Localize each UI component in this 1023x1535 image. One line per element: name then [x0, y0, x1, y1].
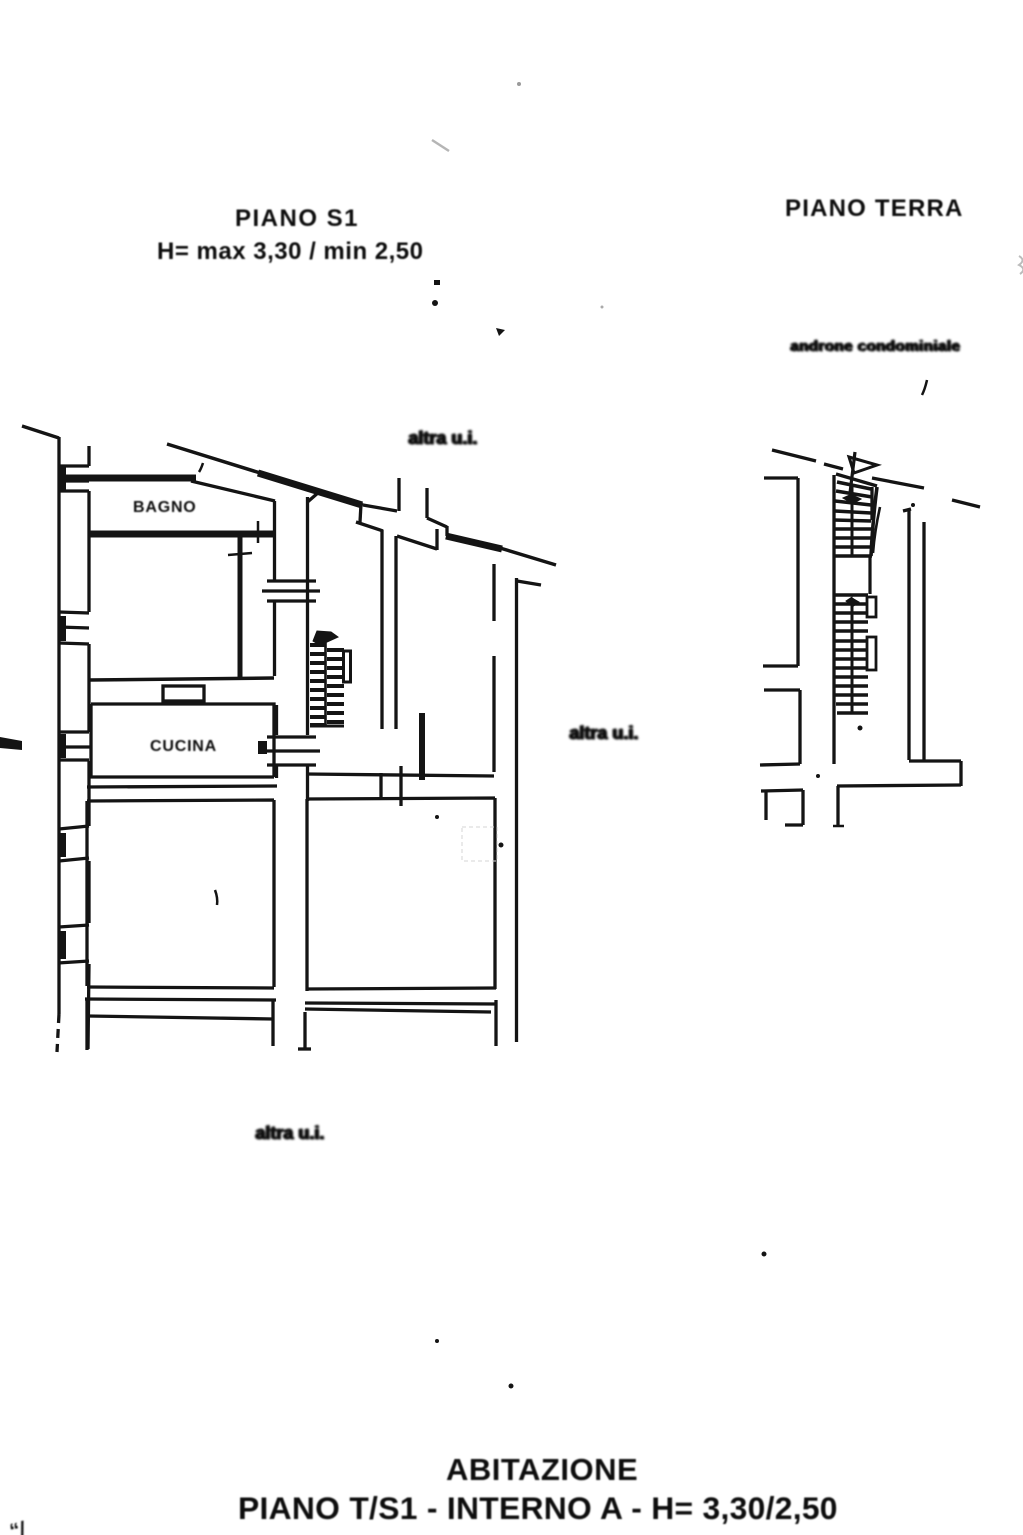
svg-text:CUCINA: CUCINA	[150, 738, 217, 755]
svg-text:H= max 3,30 / min 2,50: H= max 3,30 / min 2,50	[157, 238, 423, 265]
svg-text:ABITAZIONE: ABITAZIONE	[446, 1452, 638, 1487]
svg-text:altra u.i.: altra u.i.	[409, 428, 478, 448]
svg-text:PIANO TERRA: PIANO TERRA	[785, 195, 964, 222]
svg-text:PIANO S1: PIANO S1	[235, 205, 359, 232]
svg-text:altra u.i.: altra u.i.	[570, 723, 639, 743]
svg-text:BAGNO: BAGNO	[133, 499, 197, 516]
svg-text:PIANO T/S1 - INTERNO A - H= 3,: PIANO T/S1 - INTERNO A - H= 3,30/2,50	[238, 1490, 838, 1526]
svg-text:altra u.i.: altra u.i.	[256, 1123, 325, 1143]
svg-text:androne condominiale: androne condominiale	[789, 338, 959, 355]
